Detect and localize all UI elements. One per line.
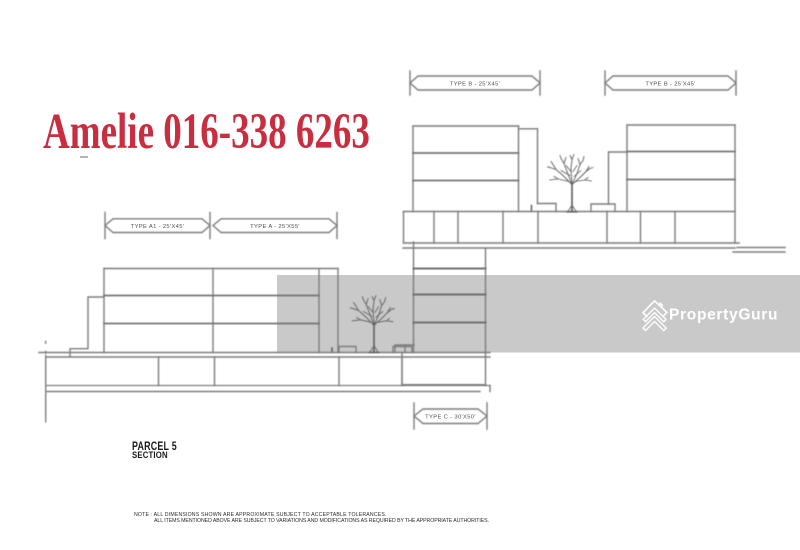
svg-text:TYPE A1 - 25'X45': TYPE A1 - 25'X45': [131, 224, 185, 230]
svg-text:TYPE B - 25'X45': TYPE B - 25'X45': [645, 81, 695, 87]
svg-text:TYPE A - 25'X55': TYPE A - 25'X55': [250, 224, 300, 230]
svg-text:PropertyGuru: PropertyGuru: [669, 306, 778, 323]
svg-text:TYPE B - 25'X45': TYPE B - 25'X45': [450, 81, 500, 87]
svg-text:TYPE C - 30'X50': TYPE C - 30'X50': [425, 414, 476, 420]
